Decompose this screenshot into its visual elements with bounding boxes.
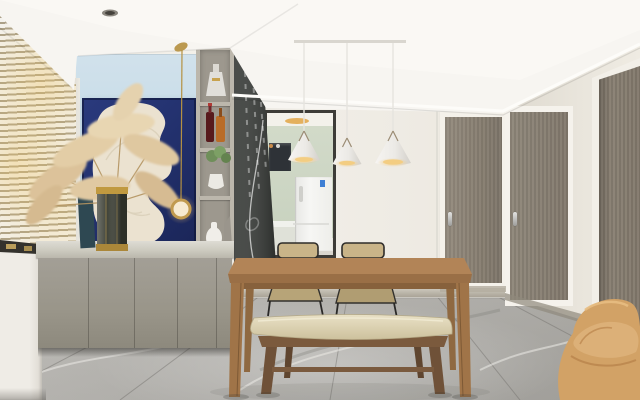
shelf-divider	[200, 196, 230, 200]
interior-door-3	[599, 66, 640, 338]
stone-countertop	[36, 241, 234, 258]
kitchen-doorway	[264, 110, 336, 258]
cabinet-door-seam	[88, 258, 89, 348]
window-lower-wall	[0, 252, 42, 400]
abstract-artwork	[82, 98, 196, 252]
kitchen-ceiling	[267, 113, 333, 126]
wall-corner-line	[436, 110, 438, 290]
cabinet-door-seam	[216, 258, 217, 348]
shelf-divider	[200, 102, 230, 106]
refrigerator	[295, 177, 332, 251]
sideboard-cabinet	[38, 258, 232, 348]
door-handle	[513, 212, 517, 226]
dining-room-photo	[0, 0, 640, 400]
pendant-rail	[294, 40, 406, 43]
cabinet-door-seam	[177, 258, 178, 348]
floor-shadow-left	[0, 388, 46, 400]
kitchen-floor	[267, 251, 333, 255]
interior-door-2	[510, 112, 568, 300]
interior-door-1	[445, 117, 502, 283]
shelf-divider	[200, 148, 230, 152]
venetian-blinds	[0, 12, 76, 254]
recessed-downlight	[102, 10, 118, 17]
cabinet-door-seam	[134, 258, 135, 348]
baseboard	[230, 288, 507, 297]
kitchen-oven	[269, 143, 291, 171]
display-shelf	[196, 46, 234, 252]
door-handle	[448, 212, 452, 226]
cabinet-shadow	[38, 348, 234, 357]
